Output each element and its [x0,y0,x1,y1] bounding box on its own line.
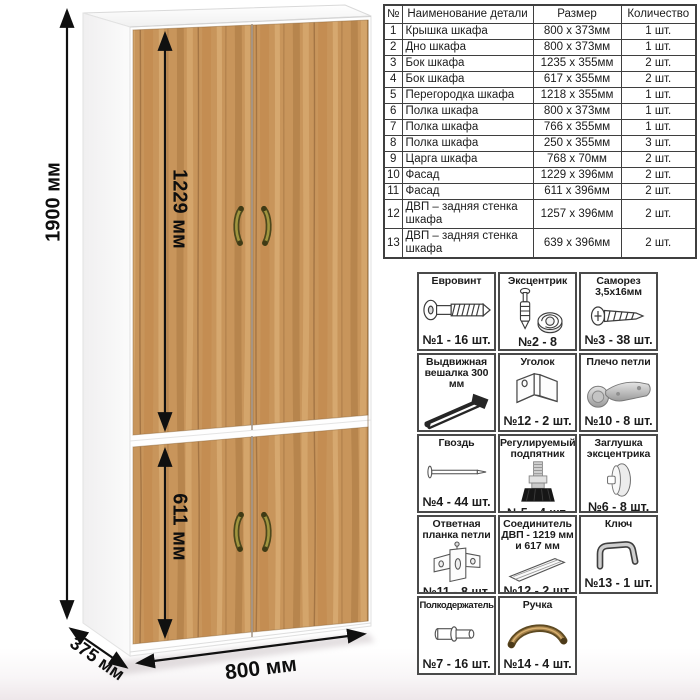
part-size: 1229 х 396мм [533,168,621,184]
row-number: 2 [384,40,402,56]
parts-table-body: 1Крышка шкафа800 х 373мм1 шт.2Дно шкафа8… [384,24,696,259]
hardware-item: Выдвижная вешалка 300 мм №10 - 1 шт. [417,353,496,432]
part-name: ДВП – задняя стенка шкафа [402,229,533,259]
row-number: 1 [384,24,402,40]
hardware-item-title: Саморез 3,5х16мм [581,274,656,298]
part-size: 617 х 355мм [533,72,621,88]
part-size: 1218 х 355мм [533,88,621,104]
row-number: 4 [384,72,402,88]
hardware-item-title: Ответная планка петли [419,517,494,541]
parts-table: № Наименование детали Размер Количество … [383,4,697,259]
part-name: Царга шкафа [402,152,533,168]
hardware-grid: Евровинт №1 - 16 шт. Эксцентрик [417,272,658,675]
table-row: 5Перегородка шкафа1218 х 355мм1 шт. [384,88,696,104]
hardware-item-title: Выдвижная вешалка 300 мм [419,355,494,390]
row-number: 13 [384,229,402,259]
parts-table-header-row: № Наименование детали Размер Количество [384,5,696,24]
part-qty: 1 шт. [621,40,696,56]
table-row: 2Дно шкафа800 х 373мм1 шт. [384,40,696,56]
part-name: Крышка шкафа [402,24,533,40]
table-row: 4Бок шкафа617 х 355мм2 шт. [384,72,696,88]
part-size: 800 х 373мм [533,104,621,120]
part-size: 800 х 373мм [533,40,621,56]
bow-handle-icon [500,611,575,657]
part-qty: 1 шт. [621,120,696,136]
hex-key-icon [581,530,656,576]
cam-cap-icon [581,460,656,500]
dim-height-label: 1900 мм [43,162,66,242]
col-header-size: Размер [533,5,621,24]
door-lower-left [133,437,251,644]
hardware-item: Саморез 3,5х16мм №3 - 38 шт. [579,272,658,351]
hardware-item-qty: №13 - 1 шт. [584,576,652,592]
corner-bracket-icon [500,368,575,414]
row-number: 11 [384,184,402,200]
table-row: 11Фасад611 х 396мм2 шт. [384,184,696,200]
hardware-item-qty: №4 - 44 шт. [422,495,490,511]
nail-icon [419,449,494,495]
part-name: Полка шкафа [402,120,533,136]
hinge-arm-icon [581,368,656,414]
part-size: 766 х 355мм [533,120,621,136]
col-header-qty: Количество [621,5,696,24]
hinge-mounting-plate-icon [419,541,494,585]
table-row: 9Царга шкафа768 х 70мм2 шт. [384,152,696,168]
part-qty: 2 шт. [621,56,696,72]
hardware-item-qty: №5 - 4 шт. [507,506,568,513]
part-size: 768 х 70мм [533,152,621,168]
hardware-item-qty: №6 - 8 шт. [588,500,649,513]
hardware-item-title: Гвоздь [419,436,494,449]
hardware-item-qty: №10 - 1 шт. [422,430,490,432]
table-row: 1Крышка шкафа800 х 373мм1 шт. [384,24,696,40]
hardware-item-title: Ключ [581,517,656,530]
table-row: 6Полка шкафа800 х 373мм1 шт. [384,104,696,120]
part-name: ДВП – задняя стенка шкафа [402,200,533,229]
hardware-item-title: Плечо петли [581,355,656,368]
part-name: Бок шкафа [402,72,533,88]
assembly-scheme-page: 1900 мм 1229 мм 611 мм 375 мм 800 мм № Н… [0,0,700,700]
part-qty: 2 шт. [621,184,696,200]
part-qty: 1 шт. [621,88,696,104]
hardware-item: Заглушка эксцентрика №6 - 8 шт. [579,434,658,513]
hardware-item-title: Ручка [500,598,575,611]
table-row: 3Бок шкафа1235 х 355мм2 шт. [384,56,696,72]
hardware-item-qty: №2 - 8 комп. [500,335,575,351]
hardware-item: Уголок №12 - 2 шт. [498,353,577,432]
part-qty: 2 шт. [621,229,696,259]
hardware-item-qty: №10 - 8 шт. [584,414,652,430]
eccentric-cam-icon [500,287,575,335]
row-number: 12 [384,200,402,229]
part-name: Перегородка шкафа [402,88,533,104]
table-row: 13ДВП – задняя стенка шкафа639 х 396мм2 … [384,229,696,259]
hardware-item-qty: №11 - 8 шт. [423,585,491,594]
part-name: Бок шкафа [402,56,533,72]
hardware-item: Ответная планка петли №11 - 8 шт. [417,515,496,594]
part-qty: 2 шт. [621,72,696,88]
row-number: 5 [384,88,402,104]
part-qty: 1 шт. [621,24,696,40]
hardware-item: Эксцентрик №2 - 8 комп. [498,272,577,351]
hardware-item-title: Регулируемый подпятник [500,436,575,460]
wardrobe-drawing: 1900 мм 1229 мм 611 мм 375 мм 800 мм [0,0,410,700]
hardware-item: Регулируемый подпятник №5 - 4 шт. [498,434,577,513]
shelf-pin-icon [419,611,494,657]
hardware-item-qty: №7 - 16 шт. [422,657,490,673]
part-size: 800 х 373мм [533,24,621,40]
part-size: 611 х 396мм [533,184,621,200]
part-name: Полка шкафа [402,136,533,152]
hardware-item: Евровинт №1 - 16 шт. [417,272,496,351]
part-size: 1257 х 396мм [533,200,621,229]
col-header-name: Наименование детали [402,5,533,24]
hardware-item: Соединитель ДВП - 1219 мм и 617 мм №12 -… [498,515,577,594]
part-qty: 1 шт. [621,104,696,120]
part-size: 1235 х 355мм [533,56,621,72]
part-qty: 2 шт. [621,152,696,168]
hardware-item-qty: №12 - 2 шт. [503,414,571,430]
hardware-item-qty: №1 - 16 шт. [422,333,490,349]
hardware-item-title: Соединитель ДВП - 1219 мм и 617 мм [500,517,575,552]
part-name: Дно шкафа [402,40,533,56]
hardware-item-title: Евровинт [419,274,494,287]
hardware-item-qty: №3 - 38 шт. [584,333,652,349]
row-number: 9 [384,152,402,168]
wardrobe-svg [0,0,410,700]
hardware-item-qty: №12 - 2 шт. [503,584,571,594]
hardware-item: Плечо петли №10 - 8 шт. [579,353,658,432]
part-qty: 2 шт. [621,168,696,184]
hardware-item-title: Заглушка эксцентрика [581,436,656,460]
part-name: Фасад [402,168,533,184]
dim-lower-door-label: 611 мм [168,493,191,560]
hardware-item: Ключ №13 - 1 шт. [579,515,658,594]
hdf-connector-icon [500,552,575,584]
row-number: 8 [384,136,402,152]
part-size: 250 х 355мм [533,136,621,152]
hardware-item: Полкодержатель №7 - 16 шт. [417,596,496,675]
euro-screw-icon [419,287,494,333]
door-upper-left [133,25,251,435]
dim-upper-door-label: 1229 мм [168,169,191,249]
part-size: 639 х 396мм [533,229,621,259]
hardware-item-title: Эксцентрик [500,274,575,287]
adjustable-foot-icon [500,460,575,506]
self-tapping-screw-icon [581,298,656,333]
row-number: 10 [384,168,402,184]
row-number: 7 [384,120,402,136]
col-header-number: № [384,5,402,24]
part-qty: 3 шт. [621,136,696,152]
pull-out-hanger-icon [419,390,494,430]
table-row: 7Полка шкафа766 х 355мм1 шт. [384,120,696,136]
table-row: 8Полка шкафа250 х 355мм3 шт. [384,136,696,152]
part-name: Фасад [402,184,533,200]
table-row: 12ДВП – задняя стенка шкафа1257 х 396мм2… [384,200,696,229]
hardware-item-title: Полкодержатель [419,598,494,611]
part-qty: 2 шт. [621,200,696,229]
hardware-item: Гвоздь №4 - 44 шт. [417,434,496,513]
row-number: 6 [384,104,402,120]
hardware-item-title: Уголок [500,355,575,368]
row-number: 3 [384,56,402,72]
hardware-item: Ручка №14 - 4 шт. [498,596,577,675]
part-name: Полка шкафа [402,104,533,120]
table-row: 10Фасад1229 х 396мм2 шт. [384,168,696,184]
hardware-item-qty: №14 - 4 шт. [503,657,571,673]
